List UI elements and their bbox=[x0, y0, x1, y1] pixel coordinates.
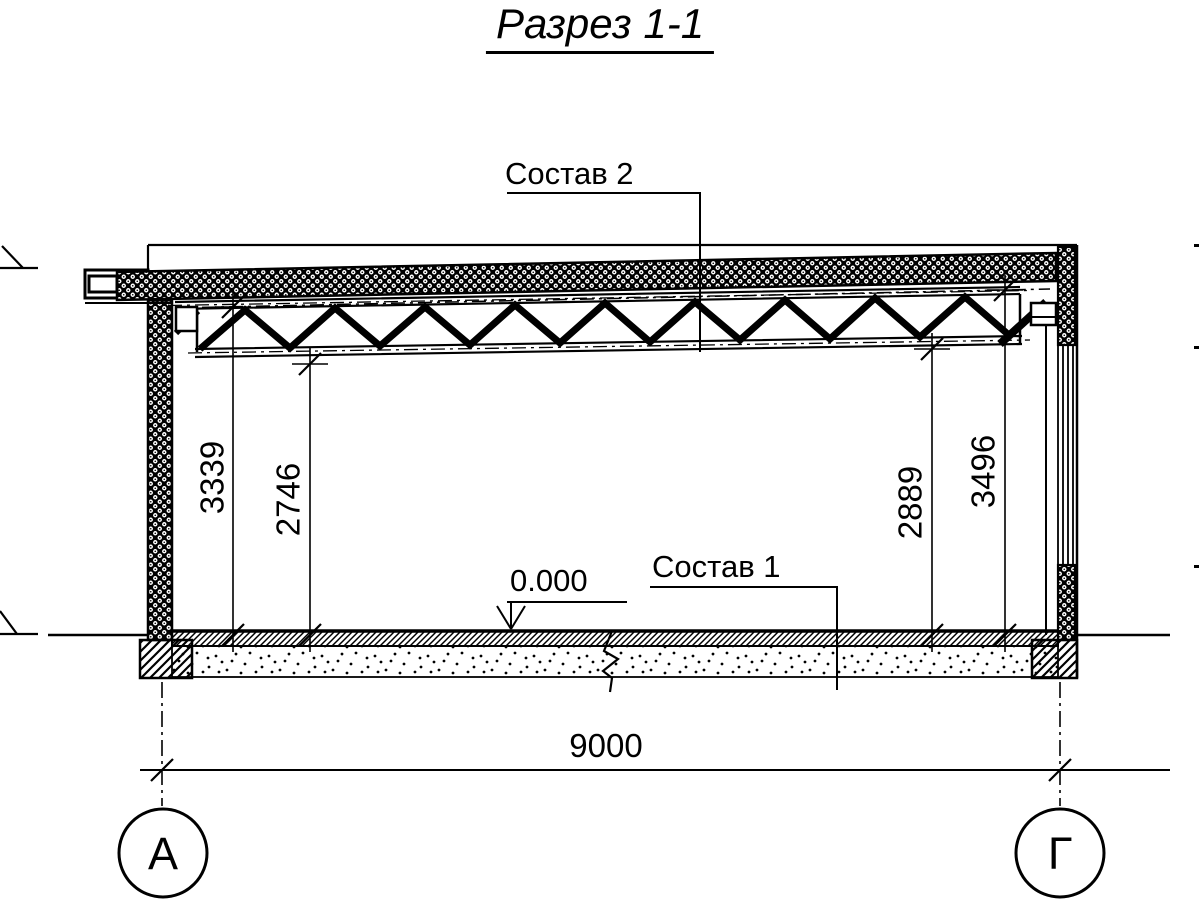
dimension-lines bbox=[233, 275, 1005, 652]
roof-insulation-band bbox=[117, 253, 1056, 300]
right-foundation bbox=[1032, 640, 1077, 678]
floor-screed-layer bbox=[172, 631, 1058, 646]
floor-composition-label: Состав 1 bbox=[652, 551, 781, 582]
dimension-span: 9000 bbox=[546, 729, 666, 762]
left-foundation bbox=[140, 640, 192, 678]
left-ground-level-mark bbox=[0, 611, 38, 634]
dimension-left-truss: 2746 bbox=[272, 440, 305, 560]
left-wall bbox=[140, 300, 192, 678]
span-dimension bbox=[119, 682, 1170, 897]
axis-letter-right: Г bbox=[1030, 831, 1090, 876]
roof-composition-label: Состав 2 bbox=[505, 158, 634, 189]
right-wall-window-lines bbox=[1058, 345, 1075, 565]
floor-level-label: 0.000 bbox=[510, 565, 588, 596]
drawing-title: Разрез 1-1 bbox=[486, 3, 714, 54]
truss-left-bearing bbox=[176, 307, 197, 331]
right-edge-mark bbox=[1194, 244, 1199, 247]
truss-right-bearing bbox=[1031, 303, 1056, 325]
section-geometry bbox=[0, 0, 1200, 900]
section-drawing: Разрез 1-1 Состав 2 Состав 1 0.000 3339 … bbox=[0, 0, 1200, 900]
dimension-right-truss: 2889 bbox=[894, 443, 927, 563]
right-edge-mark bbox=[1194, 346, 1199, 349]
right-wall-lower-hatch bbox=[1058, 565, 1075, 640]
level-mark-arrow bbox=[497, 602, 627, 629]
roof-fascia-inner bbox=[89, 276, 117, 292]
right-edge-mark bbox=[1194, 565, 1199, 568]
dimension-right-deck: 3496 bbox=[967, 412, 1000, 532]
dimension-left-deck: 3339 bbox=[196, 418, 229, 538]
right-wall-upper-hatch bbox=[1058, 247, 1075, 345]
axis-letter-left: А bbox=[133, 831, 193, 876]
left-top-level-mark bbox=[0, 246, 38, 268]
